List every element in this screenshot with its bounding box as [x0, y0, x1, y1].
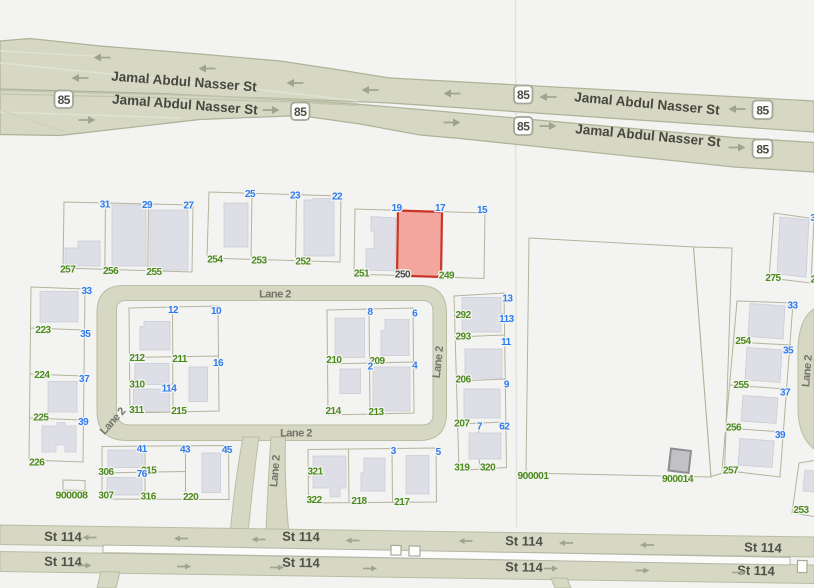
svg-text:St 114: St 114: [44, 554, 83, 570]
svg-text:35: 35: [80, 329, 91, 340]
svg-text:Lane 2: Lane 2: [800, 354, 814, 387]
svg-text:250: 250: [395, 270, 411, 281]
svg-text:900014: 900014: [662, 474, 694, 485]
svg-text:23: 23: [290, 191, 301, 202]
svg-text:St 114: St 114: [505, 533, 544, 549]
svg-text:226: 226: [29, 457, 45, 468]
svg-text:29: 29: [142, 200, 153, 211]
svg-text:31: 31: [100, 200, 111, 211]
svg-text:252: 252: [295, 257, 311, 268]
svg-text:311: 311: [129, 405, 145, 416]
svg-text:85: 85: [756, 143, 769, 157]
svg-text:257: 257: [60, 265, 76, 276]
svg-text:85: 85: [58, 93, 71, 107]
svg-text:213: 213: [368, 407, 384, 418]
svg-text:3: 3: [810, 213, 814, 224]
svg-text:206: 206: [456, 375, 472, 386]
svg-text:307: 307: [98, 491, 114, 502]
svg-text:85: 85: [517, 120, 530, 134]
svg-text:22: 22: [332, 192, 343, 203]
svg-text:33: 33: [81, 286, 92, 297]
svg-text:17: 17: [435, 203, 446, 214]
svg-text:224: 224: [34, 370, 50, 381]
svg-text:900001: 900001: [518, 471, 550, 482]
svg-text:35: 35: [783, 346, 794, 357]
svg-text:37: 37: [780, 388, 791, 399]
svg-text:39: 39: [78, 417, 89, 428]
svg-text:218: 218: [351, 496, 367, 507]
svg-text:220: 220: [183, 492, 199, 503]
svg-text:255: 255: [733, 380, 749, 391]
svg-text:St 114: St 114: [744, 539, 783, 555]
svg-text:76: 76: [137, 469, 148, 480]
svg-text:St 114: St 114: [282, 529, 321, 545]
svg-text:85: 85: [756, 104, 769, 118]
svg-text:223: 223: [35, 325, 51, 336]
svg-text:320: 320: [480, 462, 496, 473]
svg-text:256: 256: [103, 266, 119, 277]
svg-text:St 114: St 114: [282, 555, 321, 571]
svg-text:10: 10: [211, 306, 222, 317]
svg-text:13: 13: [502, 293, 513, 304]
svg-text:210: 210: [326, 355, 342, 366]
svg-text:85: 85: [517, 88, 530, 102]
svg-text:16: 16: [213, 358, 224, 369]
svg-text:256: 256: [726, 423, 742, 434]
svg-text:114: 114: [162, 383, 178, 394]
svg-text:255: 255: [146, 267, 162, 278]
svg-text:St 114: St 114: [44, 529, 83, 545]
svg-text:St 114: St 114: [737, 562, 776, 578]
svg-text:27: 27: [183, 200, 194, 211]
svg-text:45: 45: [222, 445, 233, 456]
svg-text:310: 310: [129, 380, 145, 391]
svg-text:900008: 900008: [56, 491, 89, 502]
svg-text:2: 2: [810, 275, 814, 286]
svg-text:215: 215: [171, 406, 187, 417]
svg-text:319: 319: [454, 462, 470, 473]
svg-text:321: 321: [308, 466, 324, 477]
svg-text:113: 113: [499, 314, 515, 325]
svg-text:212: 212: [129, 353, 145, 364]
svg-text:25: 25: [245, 189, 256, 200]
svg-text:275: 275: [765, 273, 781, 284]
svg-text:12: 12: [168, 305, 179, 316]
svg-text:225: 225: [33, 412, 49, 423]
svg-text:211: 211: [172, 354, 188, 365]
svg-text:Lane 2: Lane 2: [259, 289, 291, 301]
svg-text:St 114: St 114: [505, 559, 544, 575]
svg-text:316: 316: [141, 491, 157, 502]
svg-text:62: 62: [499, 422, 510, 433]
svg-text:254: 254: [207, 255, 223, 266]
svg-text:11: 11: [501, 337, 512, 348]
svg-text:207: 207: [454, 419, 470, 430]
svg-text:33: 33: [787, 301, 798, 312]
svg-text:292: 292: [456, 310, 472, 321]
svg-text:37: 37: [79, 374, 90, 385]
svg-text:39: 39: [775, 430, 786, 441]
svg-text:253: 253: [251, 255, 267, 266]
svg-text:306: 306: [98, 467, 114, 478]
svg-text:15: 15: [477, 205, 488, 216]
svg-text:257: 257: [723, 466, 739, 477]
svg-text:43: 43: [180, 444, 191, 455]
svg-text:Lane 2: Lane 2: [280, 428, 312, 440]
svg-text:254: 254: [735, 336, 751, 347]
svg-text:85: 85: [294, 105, 307, 119]
svg-text:19: 19: [391, 203, 402, 214]
svg-text:41: 41: [137, 444, 148, 455]
svg-text:253: 253: [793, 505, 809, 516]
svg-text:322: 322: [307, 495, 323, 506]
svg-text:249: 249: [439, 271, 455, 282]
svg-text:293: 293: [456, 332, 472, 343]
svg-text:214: 214: [326, 406, 342, 417]
svg-text:217: 217: [394, 497, 410, 508]
svg-text:251: 251: [354, 269, 370, 280]
